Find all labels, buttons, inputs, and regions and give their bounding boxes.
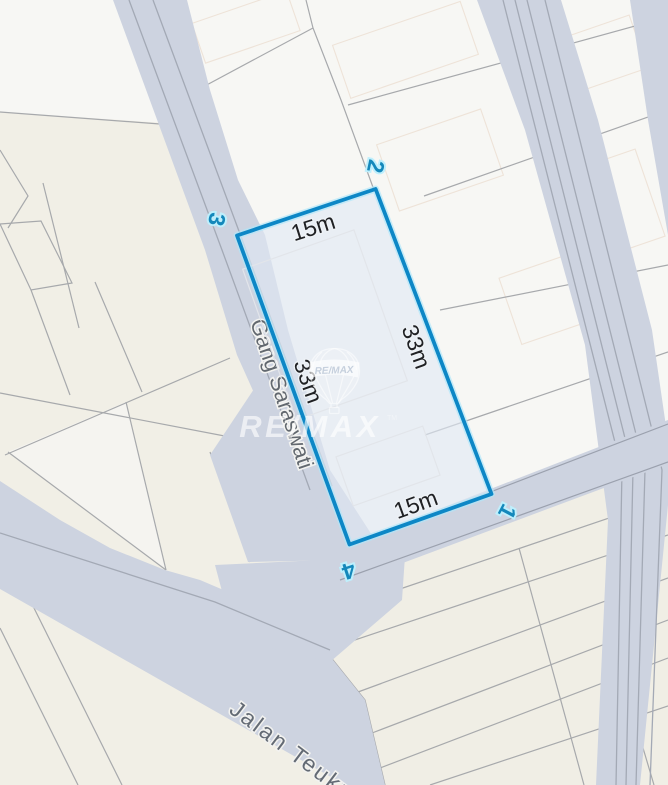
svg-text:TM: TM	[387, 415, 397, 422]
svg-text:RE/MAX: RE/MAX	[314, 365, 355, 377]
svg-text:RE/MAX: RE/MAX	[239, 409, 381, 444]
